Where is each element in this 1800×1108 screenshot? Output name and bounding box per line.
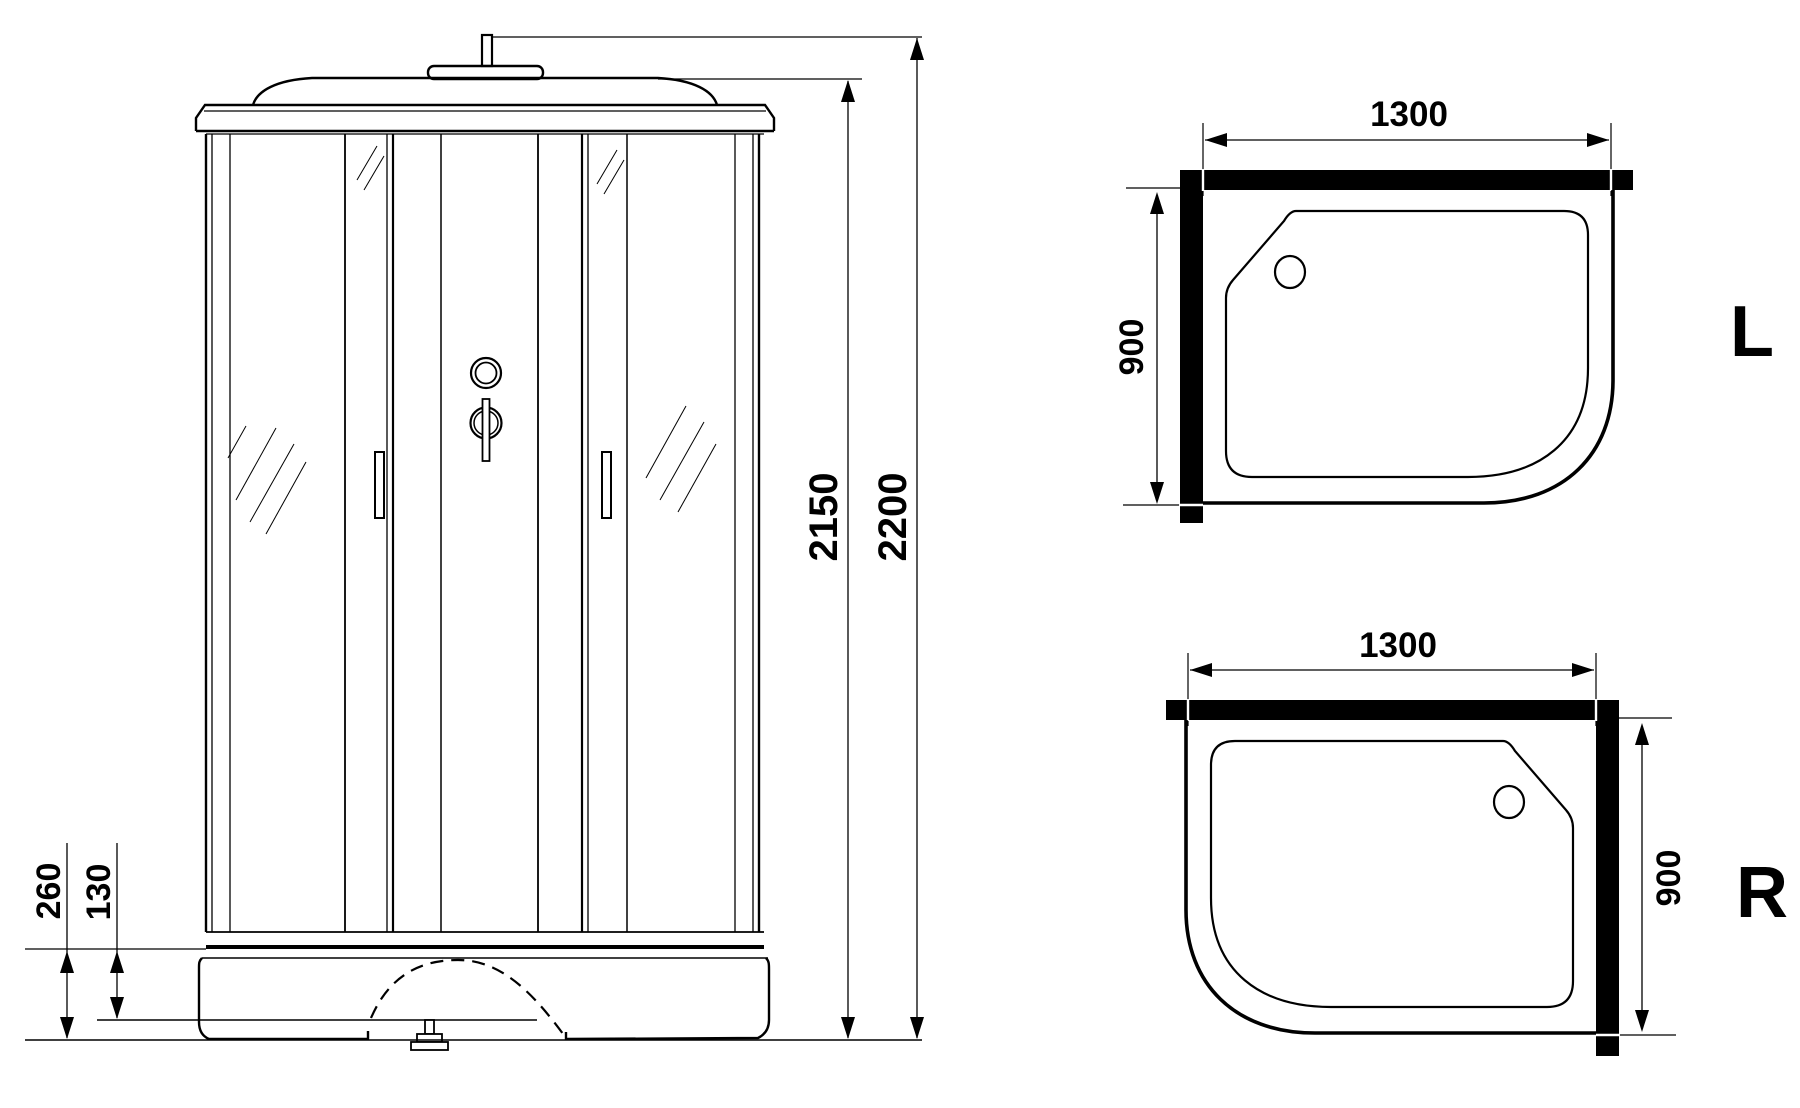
wall-top bbox=[1166, 700, 1619, 720]
technical-drawing-page: 2200 2150 260 130 bbox=[0, 0, 1800, 1108]
dimension-label-1300: 1300 bbox=[1359, 626, 1437, 665]
dimension-label-130: 130 bbox=[80, 864, 118, 921]
right-door-handle bbox=[602, 452, 611, 518]
orientation-label-l: L bbox=[1730, 292, 1774, 372]
drain-flange bbox=[417, 1034, 442, 1042]
left-door-handle bbox=[375, 452, 384, 518]
dimension-label-2200: 2200 bbox=[871, 473, 915, 562]
drain-base bbox=[411, 1042, 448, 1050]
dimension-label-2150: 2150 bbox=[802, 473, 846, 562]
dimension-label-900: 900 bbox=[1650, 850, 1688, 907]
faucet-lever bbox=[483, 399, 490, 461]
orientation-label-r: R bbox=[1736, 853, 1788, 933]
wall-right bbox=[1596, 700, 1619, 1056]
dimension-label-1300: 1300 bbox=[1370, 95, 1448, 134]
dimension-label-260: 260 bbox=[30, 863, 68, 920]
shower-cabin-drawing: 2200 2150 260 130 bbox=[0, 0, 1800, 1108]
dimension-label-900: 900 bbox=[1113, 319, 1151, 376]
drain-pipe bbox=[425, 1020, 434, 1034]
wall-left bbox=[1180, 170, 1203, 523]
wall-top bbox=[1180, 170, 1633, 190]
